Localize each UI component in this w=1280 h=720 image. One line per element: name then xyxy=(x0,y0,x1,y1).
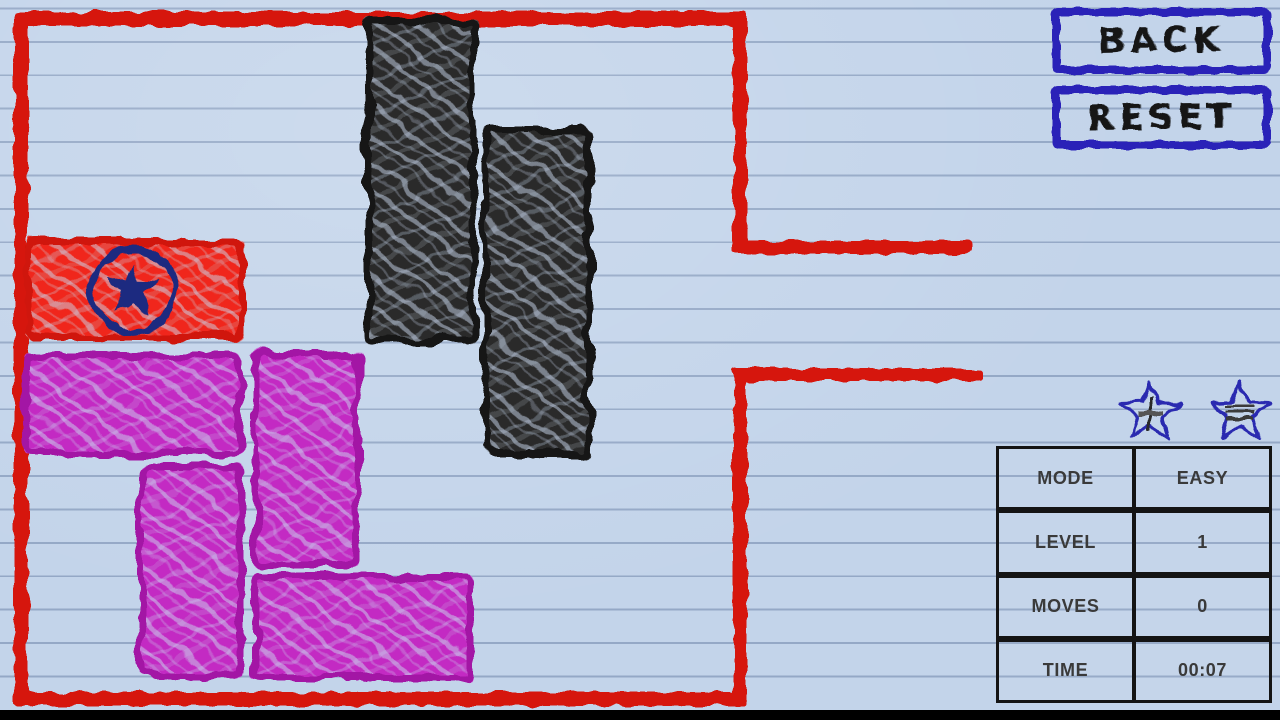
hud-star-icon-2 xyxy=(1210,382,1270,439)
moves-label: MOVES xyxy=(999,578,1136,636)
mode-label: MODE xyxy=(999,449,1136,507)
block-magenta-vertical-1[interactable] xyxy=(253,350,361,568)
status-table: MODE EASY LEVEL 1 MOVES 0 TIME 00:07 xyxy=(996,446,1272,703)
block-magenta-horizontal-2[interactable] xyxy=(252,574,473,681)
back-button[interactable]: BACK xyxy=(1052,8,1271,74)
time-label: TIME xyxy=(999,642,1136,700)
hud-stars xyxy=(1120,382,1270,439)
block-black-vertical-2-texture2 xyxy=(482,127,592,457)
status-row-moves: MOVES 0 xyxy=(999,572,1269,636)
status-row-mode: MODE EASY xyxy=(999,449,1269,507)
wall-right-upper xyxy=(733,12,747,254)
hud-star-icon-1 xyxy=(1120,382,1180,439)
block-magenta-vertical-1-texture2 xyxy=(253,350,361,568)
bottom-system-bar xyxy=(0,710,1280,720)
back-button-label: BACK xyxy=(1098,20,1225,62)
exit-wall-lower xyxy=(733,368,983,381)
target-block-red[interactable] xyxy=(25,239,245,340)
block-magenta-vertical-2[interactable] xyxy=(138,464,244,678)
block-black-vertical-1[interactable] xyxy=(366,18,476,344)
reset-button[interactable]: RESET xyxy=(1052,86,1271,149)
wall-bottom xyxy=(14,692,747,706)
block-black-vertical-1-texture2 xyxy=(366,18,476,344)
status-row-level: LEVEL 1 xyxy=(999,507,1269,571)
reset-button-label: RESET xyxy=(1087,96,1236,138)
block-magenta-horizontal-1-texture2 xyxy=(23,352,243,456)
level-value: 1 xyxy=(1136,513,1269,571)
puzzle-blocks xyxy=(23,18,592,681)
block-magenta-horizontal-2-texture2 xyxy=(252,574,473,681)
hud-star-outline xyxy=(1210,382,1270,439)
block-magenta-vertical-2-texture2 xyxy=(138,464,244,678)
exit-wall-upper xyxy=(733,241,971,254)
moves-value: 0 xyxy=(1136,578,1269,636)
block-magenta-horizontal-1[interactable] xyxy=(23,352,243,456)
mode-value: EASY xyxy=(1136,449,1269,507)
level-label: LEVEL xyxy=(999,513,1136,571)
wall-right-lower xyxy=(733,368,747,706)
time-value: 00:07 xyxy=(1136,642,1269,700)
game-screen: BACK RESET MODE EASY LEVEL 1 MOVES 0 TIM… xyxy=(0,0,1280,720)
block-black-vertical-2[interactable] xyxy=(482,127,592,457)
status-row-time: TIME 00:07 xyxy=(999,636,1269,700)
